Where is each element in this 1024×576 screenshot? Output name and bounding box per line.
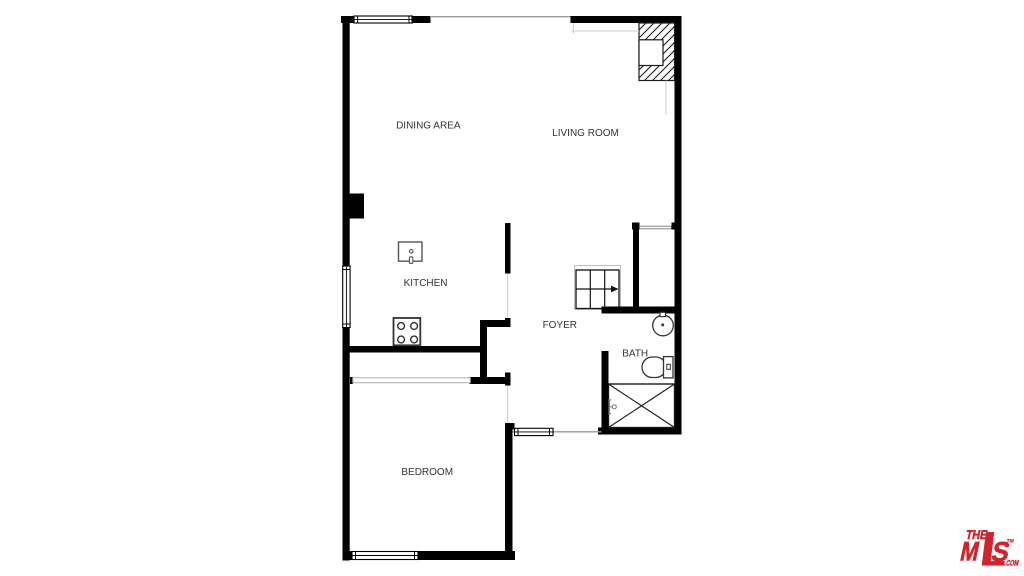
svg-text:.COM: .COM (1004, 560, 1020, 568)
svg-text:BATH: BATH (622, 349, 648, 360)
svg-text:TM: TM (1006, 539, 1014, 545)
svg-text:DINING AREA: DINING AREA (396, 121, 461, 132)
svg-text:KITCHEN: KITCHEN (404, 278, 448, 289)
svg-text:BEDROOM: BEDROOM (401, 467, 453, 478)
svg-text:FOYER: FOYER (543, 320, 577, 331)
svg-text:LIVING ROOM: LIVING ROOM (552, 128, 619, 139)
